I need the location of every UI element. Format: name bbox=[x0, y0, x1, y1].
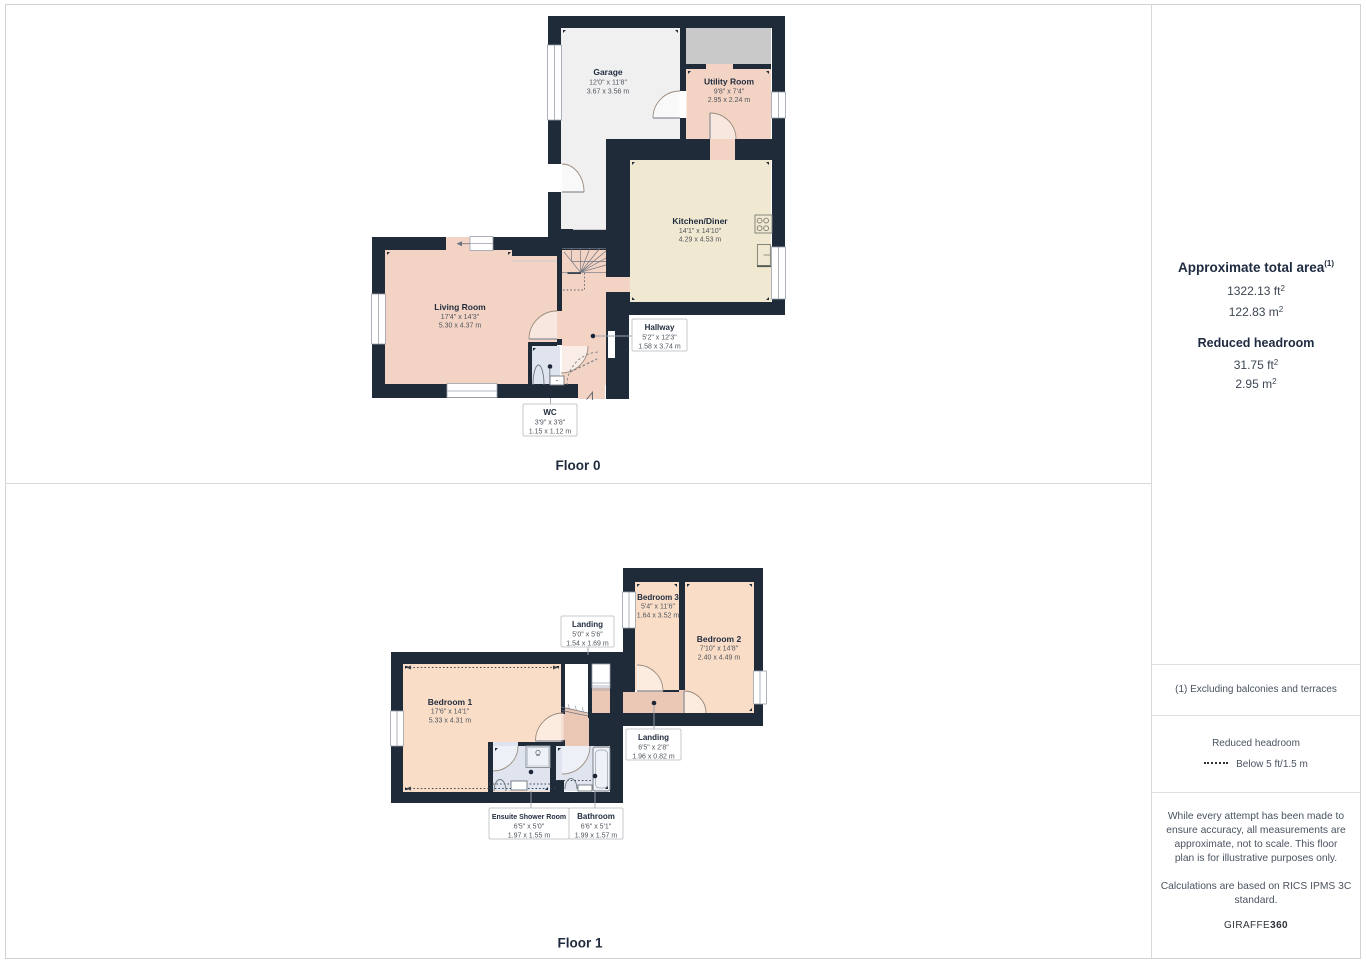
svg-text:7'10" x 14'8": 7'10" x 14'8" bbox=[700, 646, 739, 653]
svg-text:Bedroom 1: Bedroom 1 bbox=[428, 697, 473, 707]
svg-text:1.58 x 3.74 m: 1.58 x 3.74 m bbox=[638, 344, 681, 351]
svg-text:5'2" x 12'3": 5'2" x 12'3" bbox=[642, 335, 677, 342]
svg-text:5.33 x 4.31 m: 5.33 x 4.31 m bbox=[429, 717, 472, 724]
svg-text:Hallway: Hallway bbox=[645, 323, 675, 332]
svg-text:Utility Room: Utility Room bbox=[704, 77, 754, 87]
svg-text:Floor 1: Floor 1 bbox=[557, 936, 602, 951]
svg-text:5'0" x 5'6": 5'0" x 5'6" bbox=[572, 632, 603, 639]
svg-text:17'6" x 14'1": 17'6" x 14'1" bbox=[431, 709, 470, 716]
svg-text:5.30 x 4.37 m: 5.30 x 4.37 m bbox=[439, 323, 482, 330]
svg-text:Living Room: Living Room bbox=[434, 302, 486, 312]
svg-text:Garage: Garage bbox=[593, 67, 623, 77]
svg-text:9'8" x 7'4": 9'8" x 7'4" bbox=[714, 89, 745, 96]
svg-text:1.96 x 0.82 m: 1.96 x 0.82 m bbox=[632, 754, 675, 761]
svg-text:Kitchen/Diner: Kitchen/Diner bbox=[672, 216, 728, 226]
svg-text:6'5" x 5'0": 6'5" x 5'0" bbox=[514, 824, 545, 831]
svg-text:Landing: Landing bbox=[572, 620, 603, 629]
svg-text:12'0" x 11'8": 12'0" x 11'8" bbox=[589, 80, 627, 87]
svg-text:3'9" x 3'8": 3'9" x 3'8" bbox=[535, 420, 566, 427]
svg-text:Landing: Landing bbox=[638, 733, 669, 742]
svg-text:1.97 x 1.55 m: 1.97 x 1.55 m bbox=[508, 833, 551, 840]
svg-text:1.15 x 1.12 m: 1.15 x 1.12 m bbox=[529, 429, 572, 436]
svg-text:1.99 x 1.57 m: 1.99 x 1.57 m bbox=[575, 833, 618, 840]
svg-text:Bathroom: Bathroom bbox=[577, 812, 615, 821]
svg-text:1.54 x 1.69 m: 1.54 x 1.69 m bbox=[566, 641, 609, 648]
svg-text:Bedroom 3: Bedroom 3 bbox=[637, 593, 679, 602]
svg-text:3.67 x 3.56 m: 3.67 x 3.56 m bbox=[587, 88, 630, 95]
svg-text:2.40 x 4.49 m: 2.40 x 4.49 m bbox=[698, 654, 741, 661]
svg-text:2.95 x 2.24 m: 2.95 x 2.24 m bbox=[708, 97, 751, 104]
svg-text:6'6" x 5'1": 6'6" x 5'1" bbox=[581, 824, 612, 831]
svg-text:5'4" x 11'6": 5'4" x 11'6" bbox=[641, 604, 675, 611]
svg-text:17'4" x 14'3": 17'4" x 14'3" bbox=[441, 314, 480, 321]
svg-text:14'1" x 14'10": 14'1" x 14'10" bbox=[679, 228, 722, 235]
svg-text:6'5" x 2'8": 6'5" x 2'8" bbox=[638, 745, 669, 752]
svg-text:WC: WC bbox=[543, 408, 557, 417]
svg-text:Bedroom 2: Bedroom 2 bbox=[697, 634, 742, 644]
svg-text:Ensuite Shower Room: Ensuite Shower Room bbox=[492, 814, 566, 821]
svg-text:1.64 x 3.52 m: 1.64 x 3.52 m bbox=[637, 612, 680, 619]
svg-text:Floor 0: Floor 0 bbox=[555, 458, 600, 473]
svg-text:4.29 x 4.53 m: 4.29 x 4.53 m bbox=[679, 237, 722, 244]
